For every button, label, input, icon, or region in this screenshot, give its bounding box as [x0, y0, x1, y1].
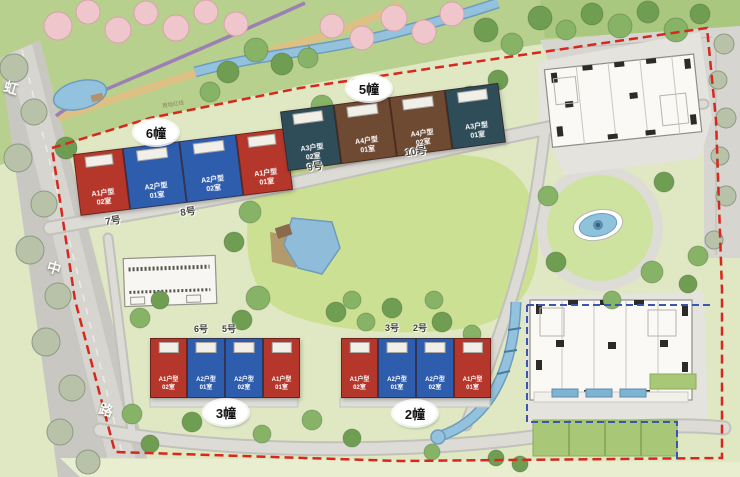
unit-a1-02: A1户型02室 — [150, 338, 187, 398]
facility-building — [123, 255, 217, 306]
stair-core — [462, 342, 482, 353]
unit-label: A2户型01室 — [196, 377, 216, 393]
unit-label: A2户型01室 — [387, 377, 407, 393]
unit-label: A1户型01室 — [254, 167, 279, 188]
stair-core — [349, 342, 369, 353]
road-label-10: 10号 — [404, 142, 427, 160]
stair-core — [247, 134, 276, 148]
unit-a4-01: A4户型01室 — [334, 97, 397, 164]
entrance-label-2: 2号 — [413, 321, 427, 334]
stair-core — [158, 342, 178, 353]
stair-core — [425, 342, 446, 353]
stair-core — [136, 147, 169, 162]
unit-a2-01: A2户型01室 — [123, 141, 187, 209]
building-6-badge: 6幢 — [134, 120, 178, 145]
stair-core — [234, 342, 255, 353]
unit-label: A1户型01室 — [272, 377, 292, 393]
building-3-badge: 3幢 — [204, 400, 248, 425]
unit-label: A1户型02室 — [91, 187, 116, 208]
building-3: A1户型02室 A2户型01室 A2户型02室 A1户型01室 — [150, 338, 300, 398]
unit-a2-01: A2户型01室 — [187, 338, 225, 398]
unit-label: A4户型01室 — [355, 135, 380, 156]
stair-core — [192, 140, 225, 155]
unit-a1-01: A1户型01室 — [454, 338, 491, 398]
entrance-label-6: 6号 — [194, 322, 208, 335]
unit-a2-02: A2户型02室 — [416, 338, 454, 398]
stair-core — [387, 342, 408, 353]
building-5-badge: 5幢 — [347, 76, 391, 101]
road-label-9: 9号 — [306, 157, 323, 174]
building-2-badge: 2幢 — [393, 401, 437, 426]
stair-core — [292, 110, 323, 125]
unit-a2-01: A2户型01室 — [378, 338, 416, 398]
entrance-label-5: 5号 — [222, 322, 236, 335]
stair-core — [402, 96, 434, 111]
unit-a2-02: A2户型02室 — [225, 338, 263, 398]
road-label-7: 7号 — [104, 211, 121, 228]
site-plan: A1户型02室 A2户型01室 A2户型02室 A1户型01室 A3户型02室 … — [0, 0, 740, 477]
unit-label: A2户型02室 — [201, 174, 226, 195]
water-pools — [552, 389, 646, 397]
unit-label: A2户型02室 — [234, 377, 254, 393]
unit-a1-01: A1户型01室 — [263, 338, 300, 398]
building-2: A1户型02室 A2户型01室 A2户型02室 A1户型01室 — [341, 338, 491, 398]
building-topright-plan — [544, 54, 701, 147]
unit-label: A1户型02室 — [159, 377, 179, 393]
stair-core — [85, 153, 114, 167]
unit-a2-02: A2户型02室 — [179, 134, 243, 202]
unit-a1-02: A1户型02室 — [73, 148, 130, 216]
stair-core — [196, 342, 217, 353]
unit-label: A1户型01室 — [463, 377, 483, 393]
unit-a1-02: A1户型02室 — [341, 338, 378, 398]
unit-label: A1户型02室 — [350, 377, 370, 393]
stair-core — [346, 103, 378, 118]
unit-label: A2户型02室 — [425, 377, 445, 393]
unit-a3-01: A3户型01室 — [445, 83, 506, 150]
stair-core — [457, 88, 488, 103]
stair-core — [271, 342, 291, 353]
entrance-label-3: 3号 — [385, 321, 399, 334]
unit-label: A2户型01室 — [144, 181, 169, 202]
unit-label: A3户型01室 — [465, 120, 490, 141]
road-label-8: 8号 — [179, 202, 196, 219]
